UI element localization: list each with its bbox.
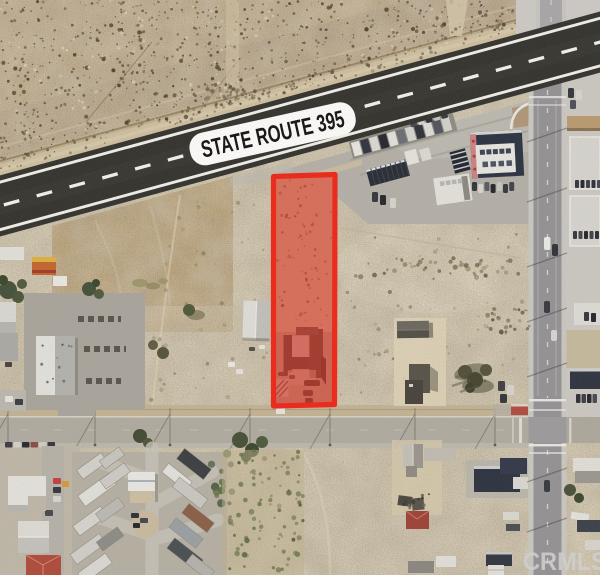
svg-text:CRMLS: CRMLS xyxy=(523,548,600,575)
